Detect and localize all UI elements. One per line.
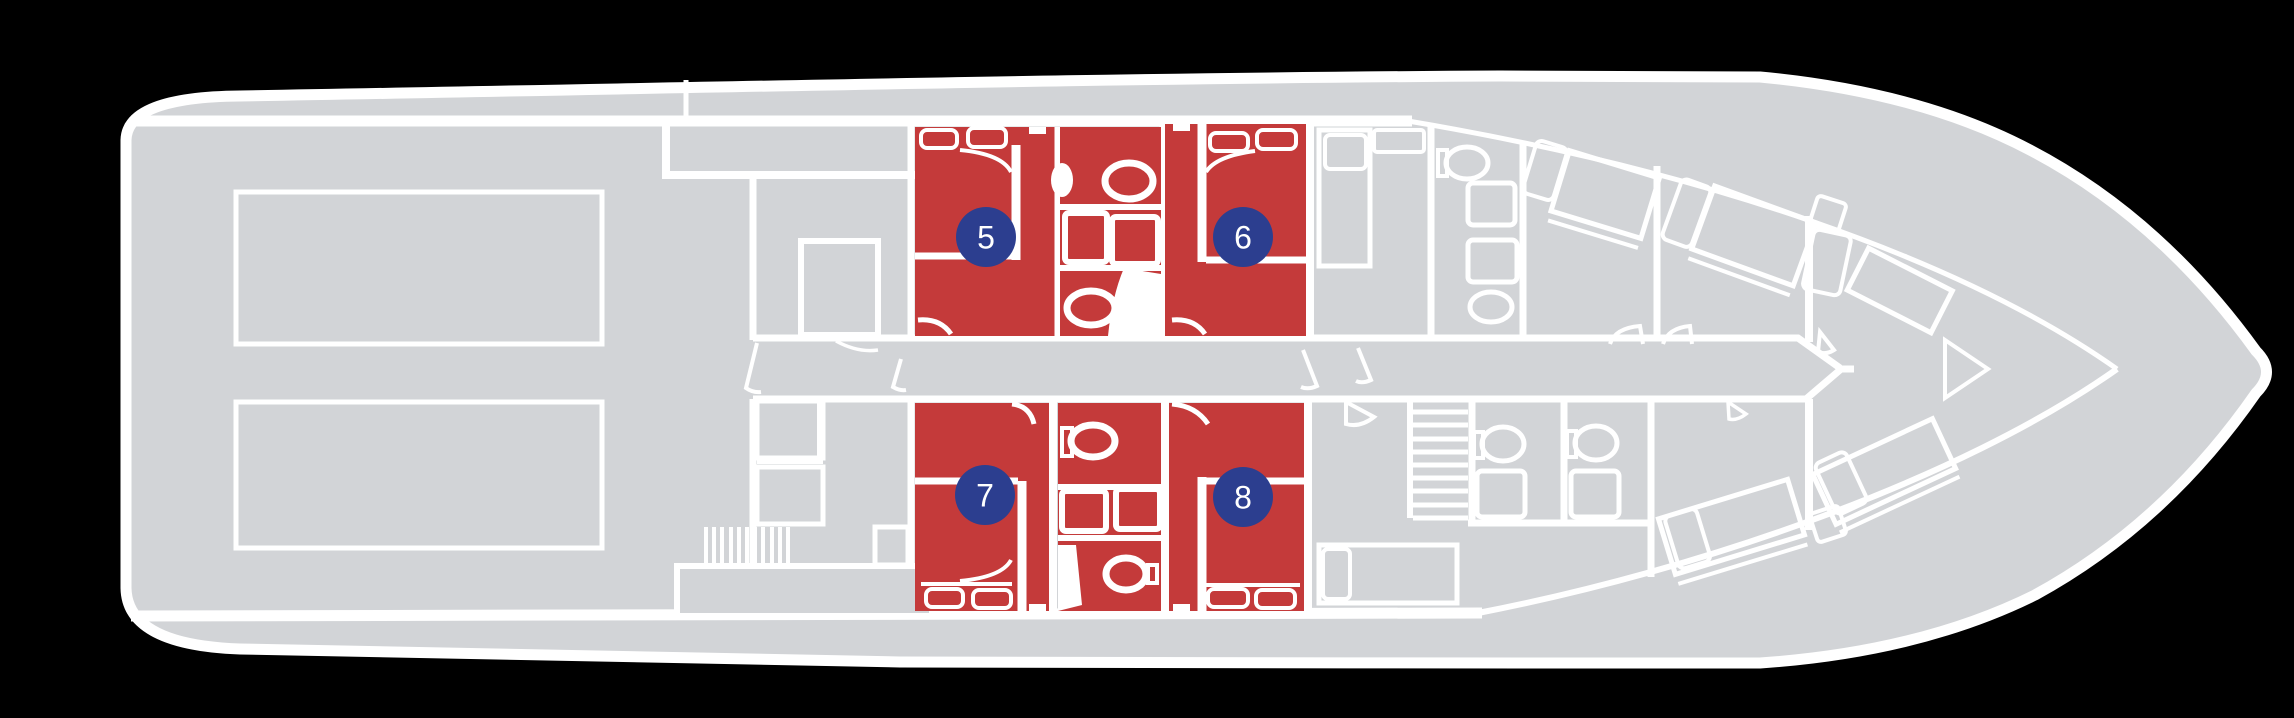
svg-text:5: 5 (977, 220, 995, 256)
svg-text:8: 8 (1234, 480, 1252, 516)
svg-text:6: 6 (1234, 220, 1252, 256)
svg-text:7: 7 (976, 478, 994, 514)
